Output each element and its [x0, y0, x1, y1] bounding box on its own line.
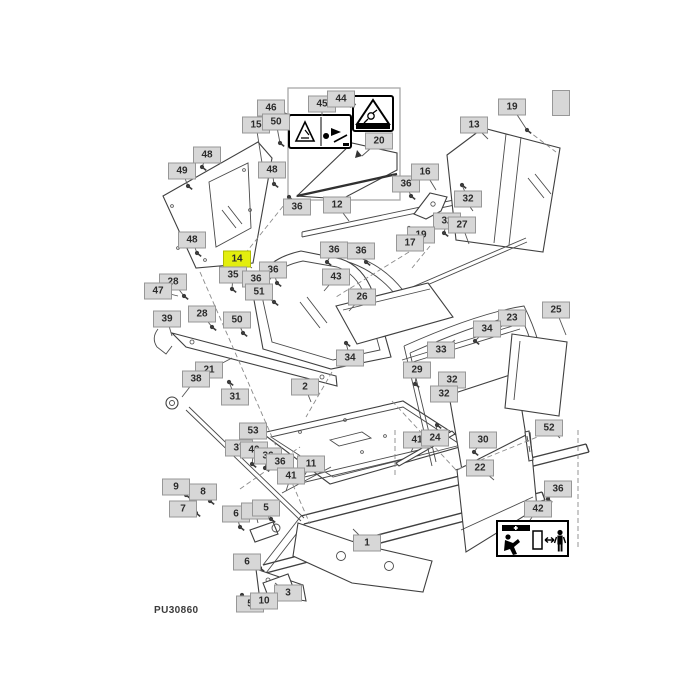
- callout-6[interactable]: 6: [233, 554, 261, 571]
- callout-42[interactable]: 42: [524, 501, 552, 518]
- callout-empty[interactable]: [552, 90, 570, 116]
- bolt-icon: [325, 260, 331, 266]
- callout-44[interactable]: 44: [327, 91, 355, 108]
- callout-36[interactable]: 36: [283, 199, 311, 216]
- bolt-icon: [182, 294, 188, 300]
- callout-1[interactable]: 1: [353, 535, 381, 552]
- callout-48[interactable]: 48: [193, 147, 221, 164]
- callout-52[interactable]: 52: [535, 420, 563, 437]
- bolt-icon: [275, 281, 281, 287]
- callout-30[interactable]: 30: [469, 432, 497, 449]
- callout-51[interactable]: 51: [245, 284, 273, 301]
- callout-2[interactable]: 2: [291, 379, 319, 396]
- callout-7[interactable]: 7: [169, 501, 197, 518]
- callout-16[interactable]: 16: [411, 164, 439, 181]
- bolt-icon: [413, 382, 419, 388]
- callout-39[interactable]: 39: [153, 311, 181, 328]
- bolt-icon: [200, 165, 206, 171]
- callout-34[interactable]: 34: [336, 350, 364, 367]
- callout-33[interactable]: 33: [427, 342, 455, 359]
- callout-22[interactable]: 22: [466, 460, 494, 477]
- parts-diagram-page: 4615504544204849481913483612361632322719…: [0, 0, 700, 700]
- bolt-icon: [230, 287, 236, 293]
- callout-48[interactable]: 48: [178, 232, 206, 249]
- callout-50[interactable]: 50: [223, 312, 251, 329]
- callout-47[interactable]: 47: [144, 283, 172, 300]
- bolt-icon: [409, 194, 415, 200]
- callout-10[interactable]: 10: [250, 593, 278, 610]
- bolt-icon: [241, 331, 247, 337]
- callout-36[interactable]: 36: [347, 243, 375, 260]
- callout-32[interactable]: 32: [454, 191, 482, 208]
- callout-3[interactable]: 3: [274, 585, 302, 602]
- callout-12[interactable]: 12: [323, 197, 351, 214]
- callout-36[interactable]: 36: [544, 481, 572, 498]
- callout-27[interactable]: 27: [448, 217, 476, 234]
- callout-17[interactable]: 17: [396, 235, 424, 252]
- callout-28[interactable]: 28: [188, 306, 216, 323]
- bolt-icon: [435, 423, 441, 429]
- callout-29[interactable]: 29: [403, 362, 431, 379]
- callout-36[interactable]: 36: [320, 242, 348, 259]
- callout-48[interactable]: 48: [258, 162, 286, 179]
- callout-26[interactable]: 26: [348, 289, 376, 306]
- bolt-icon: [525, 128, 531, 133]
- callout-19[interactable]: 19: [498, 99, 526, 116]
- callout-14[interactable]: 14: [223, 251, 251, 268]
- callout-31[interactable]: 31: [221, 389, 249, 406]
- bolt-icon: [210, 325, 216, 331]
- callout-53[interactable]: 53: [239, 423, 267, 440]
- callout-20[interactable]: 20: [365, 133, 393, 150]
- drawing-number: PU30860: [154, 605, 199, 616]
- bolt-icon: [364, 260, 370, 266]
- callout-34[interactable]: 34: [473, 321, 501, 338]
- bolt-icon: [272, 182, 278, 188]
- bolt-icon: [269, 517, 275, 523]
- callout-24[interactable]: 24: [421, 430, 449, 447]
- callout-13[interactable]: 13: [460, 117, 488, 134]
- callout-9[interactable]: 9: [162, 479, 190, 496]
- bolt-icon: [272, 300, 278, 306]
- callout-8[interactable]: 8: [189, 484, 217, 501]
- bolt-icon: [186, 184, 192, 190]
- bolt-icon: [473, 339, 479, 345]
- bolt-icon: [195, 251, 201, 257]
- bolt-icon: [238, 525, 244, 531]
- callout-43[interactable]: 43: [322, 269, 350, 286]
- callout-5[interactable]: 5: [252, 500, 280, 517]
- callout-41[interactable]: 41: [277, 468, 305, 485]
- callout-32[interactable]: 32: [430, 386, 458, 403]
- callout-38[interactable]: 38: [182, 371, 210, 388]
- callout-49[interactable]: 49: [168, 163, 196, 180]
- bolt-icon: [472, 450, 478, 456]
- bolt-icon: [278, 141, 284, 147]
- callout-50[interactable]: 50: [262, 114, 290, 131]
- callout-23[interactable]: 23: [498, 310, 526, 327]
- callout-25[interactable]: 25: [542, 302, 570, 319]
